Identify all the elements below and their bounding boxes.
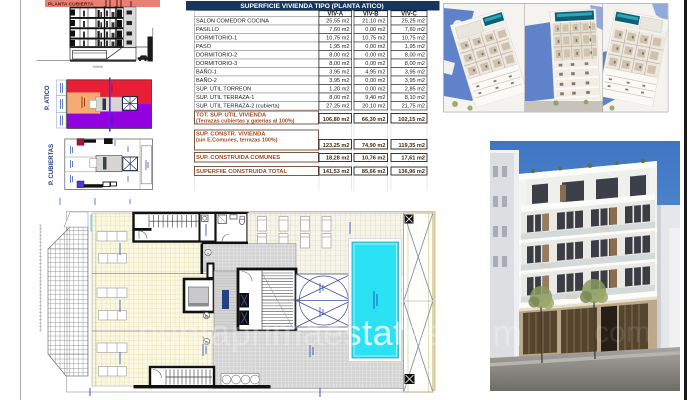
- svg-text:85,66 m2: 85,66 m2: [362, 169, 386, 175]
- svg-text:3,95 m2: 3,95 m2: [405, 70, 425, 76]
- svg-text:141,53 m2: 141,53 m2: [323, 169, 350, 175]
- svg-text:10,75 m2: 10,75 m2: [402, 36, 425, 42]
- svg-text:106,80 m2: 106,80 m2: [323, 117, 350, 123]
- svg-text:(Terrazas cubiertas y galerias: (Terrazas cubiertas y galerias al 100%): [196, 119, 295, 125]
- svg-text:7,60 m2: 7,60 m2: [329, 27, 349, 33]
- svg-text:66,30 m2: 66,30 m2: [362, 117, 386, 123]
- svg-text:BAÑO-2: BAÑO-2: [196, 77, 217, 84]
- svg-text:SUP. UTIL TERRAZA-2 (cubierta): SUP. UTIL TERRAZA-2 (cubierta): [196, 104, 280, 110]
- svg-text:SUPERFICIE VIVIENDA TIPO (PLA: SUPERFICIE VIVIENDA TIPO (PLANTA ATICO): [240, 3, 383, 10]
- svg-text:SALON COMEDOR COCINA: SALON COMEDOR COCINA: [196, 19, 269, 25]
- svg-text:puntaprimaestates.com: puntaprimaestates.com: [138, 312, 523, 353]
- svg-text:P. CUBIERTAS: P. CUBIERTAS: [49, 144, 55, 185]
- svg-text:P. ATICO: P. ATICO: [45, 85, 51, 110]
- svg-text:1,20 m2: 1,20 m2: [329, 87, 349, 93]
- svg-text:4,95 m2: 4,95 m2: [365, 70, 385, 76]
- svg-text:DORMITORIO-2: DORMITORIO-2: [196, 53, 237, 59]
- svg-text:8,00 m2: 8,00 m2: [329, 53, 349, 59]
- svg-text:10,76 m2: 10,76 m2: [362, 155, 386, 161]
- svg-text:0,00 m2: 0,00 m2: [365, 78, 385, 84]
- svg-text:0,00 m2: 0,00 m2: [365, 27, 385, 33]
- svg-text:8,00 m2: 8,00 m2: [405, 53, 425, 59]
- svg-text:DORMITORIO-1: DORMITORIO-1: [196, 36, 237, 42]
- svg-text:SUP. UTIL TERRAZA-1: SUP. UTIL TERRAZA-1: [196, 95, 254, 101]
- svg-text:25,55 m2: 25,55 m2: [326, 19, 349, 25]
- svg-text:8,00 m2: 8,00 m2: [329, 61, 349, 67]
- svg-text:17,61 m2: 17,61 m2: [401, 155, 425, 161]
- svg-text:7,60 m2: 7,60 m2: [405, 27, 425, 33]
- svg-text:9,40 m2: 9,40 m2: [365, 95, 385, 101]
- svg-text:27,25 m2: 27,25 m2: [326, 104, 349, 110]
- svg-text:SUPERFIIE CONSTRUIDA TOTAL: SUPERFIIE CONSTRUIDA TOTAL: [196, 169, 287, 175]
- svg-text:0,00 m2: 0,00 m2: [365, 61, 385, 67]
- svg-text:1,95 m2: 1,95 m2: [329, 44, 349, 50]
- svg-text:0,00 m2: 0,00 m2: [365, 87, 385, 93]
- svg-text:20,10 m2: 20,10 m2: [362, 104, 385, 110]
- svg-text:10,75 m2: 10,75 m2: [326, 36, 349, 42]
- svg-text:com: com: [594, 316, 651, 349]
- svg-text:2,85 m2: 2,85 m2: [405, 87, 425, 93]
- svg-text:10,75 m2: 10,75 m2: [362, 36, 385, 42]
- svg-text:18,28 m2: 18,28 m2: [326, 155, 350, 161]
- svg-text:3,95 m2: 3,95 m2: [329, 70, 349, 76]
- svg-text:119,35 m2: 119,35 m2: [399, 143, 425, 149]
- svg-text:3,95 m2: 3,95 m2: [405, 78, 425, 84]
- svg-text:PASILLO: PASILLO: [196, 27, 220, 33]
- svg-text:8,10 m2: 8,10 m2: [405, 95, 425, 101]
- svg-text:BAÑO-1: BAÑO-1: [196, 69, 217, 76]
- svg-text:SUP. UTIL TORREON: SUP. UTIL TORREON: [196, 87, 251, 93]
- svg-text:123,25 m2: 123,25 m2: [323, 143, 350, 149]
- svg-text:SUP. CONSTRUIDA COMUNES: SUP. CONSTRUIDA COMUNES: [196, 155, 280, 161]
- svg-text:0,00 m2: 0,00 m2: [365, 53, 385, 59]
- svg-text:DORMITORIO-3: DORMITORIO-3: [196, 61, 237, 67]
- svg-text:25,25 m2: 25,25 m2: [402, 19, 425, 25]
- svg-text:21,10 m2: 21,10 m2: [362, 19, 385, 25]
- svg-text:1,95 m2: 1,95 m2: [405, 44, 425, 50]
- svg-text:PLANTA CUBIERTA: PLANTA CUBIERTA: [48, 2, 94, 8]
- svg-text:8,00 m2: 8,00 m2: [329, 95, 349, 101]
- svg-text:(sin E.Comunes, terrazas 100%): (sin E.Comunes, terrazas 100%): [196, 138, 278, 144]
- svg-text:74,90 m2: 74,90 m2: [362, 143, 386, 149]
- svg-text:21,75 m2: 21,75 m2: [402, 104, 425, 110]
- svg-text:102,15 m2: 102,15 m2: [398, 117, 425, 123]
- svg-text:3,95 m2: 3,95 m2: [329, 78, 349, 84]
- svg-text:136,96 m2: 136,96 m2: [398, 169, 425, 175]
- svg-text:0,00 m2: 0,00 m2: [365, 44, 385, 50]
- svg-text:PASO: PASO: [196, 44, 212, 50]
- svg-text:8,00 m2: 8,00 m2: [405, 61, 425, 67]
